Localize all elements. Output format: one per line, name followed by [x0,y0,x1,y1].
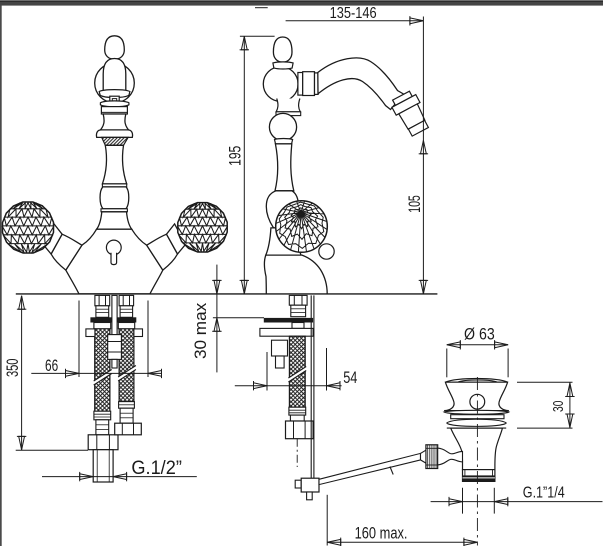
svg-text:135-146: 135-146 [330,5,377,22]
svg-text:195: 195 [226,146,244,166]
svg-text:Ø 63: Ø 63 [464,325,495,344]
svg-text:30 max: 30 max [192,302,210,359]
svg-text:66: 66 [45,357,58,375]
svg-text:105: 105 [406,195,424,213]
svg-text:G.1”1/4: G.1”1/4 [523,485,565,502]
svg-text:54: 54 [343,368,357,387]
svg-text:G.1/2”: G.1/2” [131,457,182,479]
svg-text:30: 30 [550,401,567,412]
svg-text:160 max.: 160 max. [355,524,408,542]
svg-text:350: 350 [4,359,22,378]
